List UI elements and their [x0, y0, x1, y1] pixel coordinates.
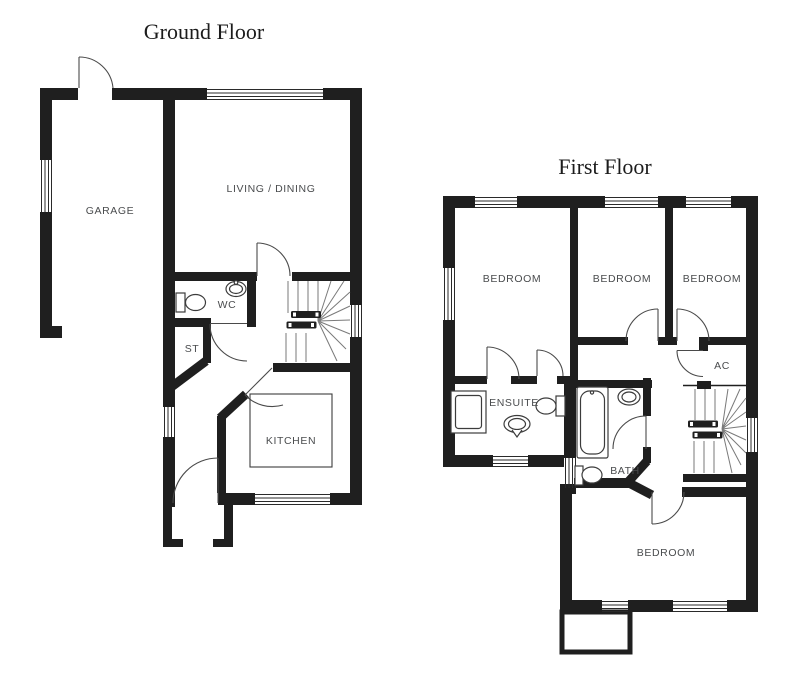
- room-label-ensuite: ENSUITE: [489, 397, 539, 409]
- bedroom4-door: [652, 492, 684, 524]
- living-window: [207, 90, 323, 100]
- bath-tub-icon: [577, 387, 608, 458]
- living-door: [257, 243, 290, 276]
- room-label-bedroom3: BEDROOM: [683, 273, 741, 285]
- room-label-bedroom4: BEDROOM: [637, 547, 695, 559]
- floorplan-svg: Ground Floor: [0, 0, 800, 680]
- room-label-bedroom2: BEDROOM: [593, 273, 651, 285]
- bedroom3-window: [686, 198, 731, 208]
- floorplan-canvas: Ground Floor: [0, 0, 800, 680]
- garage-window: [42, 160, 52, 212]
- ac-door: [677, 351, 703, 377]
- hall-window: [165, 407, 175, 437]
- first-floor-plan: First Floor: [443, 154, 758, 652]
- room-label-ac: AC: [714, 360, 730, 372]
- ensuite-window: [493, 457, 528, 467]
- garage-door: [79, 57, 113, 88]
- room-label-garage: GARAGE: [86, 205, 135, 217]
- room-label-wc: WC: [218, 299, 237, 311]
- first-floor-title: First Floor: [558, 154, 652, 179]
- bedroom3-door: [677, 309, 709, 341]
- bedroom2-door: [626, 309, 658, 341]
- kitchen-window: [255, 495, 330, 505]
- stairs-window-ground: [352, 305, 362, 337]
- room-label-bath: BATH: [610, 465, 640, 477]
- ensuite-door: [537, 350, 563, 376]
- bath-sink-icon: [618, 389, 640, 405]
- wc-door: [210, 324, 247, 362]
- first-stairs: [688, 389, 746, 473]
- front-door: [173, 458, 218, 503]
- ground-labels: GARAGE LIVING / DINING WC ST KITCHEN: [86, 183, 316, 447]
- bedroom1-side-window: [445, 268, 455, 320]
- porch-outline: [562, 612, 630, 652]
- room-label-st: ST: [185, 343, 200, 355]
- ground-floor-title: Ground Floor: [144, 19, 265, 44]
- stairs-window-first: [748, 418, 758, 452]
- bedroom1-door: [487, 347, 519, 379]
- ground-stairs: [286, 281, 350, 362]
- ensuite-toilet-icon: [536, 396, 565, 416]
- wc-sink-icon: [226, 281, 246, 297]
- room-label-living-dining: LIVING / DINING: [227, 183, 316, 195]
- room-label-bedroom1: BEDROOM: [483, 273, 541, 285]
- ground-floor-plan: Ground Floor: [40, 19, 362, 547]
- wc-toilet-icon: [176, 293, 206, 312]
- bedroom4-window-right: [673, 602, 727, 612]
- ensuite-shower-icon: [451, 391, 486, 433]
- bedroom2-window: [605, 198, 658, 208]
- bedroom1-window: [475, 198, 517, 208]
- bath-door: [613, 416, 646, 449]
- room-label-kitchen: KITCHEN: [266, 435, 316, 447]
- kitchen-door: [245, 368, 283, 407]
- ensuite-sink-icon: [504, 416, 530, 438]
